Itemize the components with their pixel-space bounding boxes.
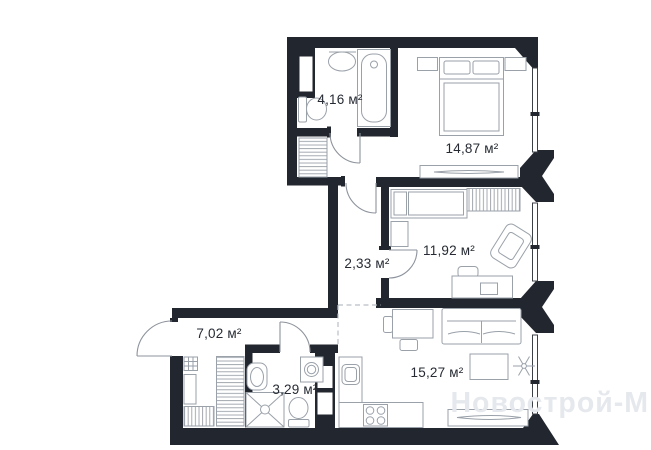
hall-stool-icon: [184, 357, 198, 371]
bedroom-door: [346, 183, 376, 213]
dining-table-icon: [384, 310, 434, 351]
room-labels: 4,16 м² 14,87 м² 11,92 м² 2,33 м² 7,02 м…: [196, 92, 498, 397]
sofa-icon: [442, 309, 521, 345]
shoe-bench-icon: [184, 407, 214, 427]
plant-icon: [513, 357, 535, 376]
sink-top-icon: [329, 52, 357, 71]
room-area-label-room: 11,92 м²: [423, 243, 475, 258]
coffee-table-icon: [470, 354, 508, 380]
room-area-label-hallway: 2,33 м²: [344, 256, 390, 271]
toilet-bottom-icon: [289, 398, 310, 428]
bedroom-window: [533, 68, 538, 152]
stove-icon: [364, 405, 388, 427]
vestibule-wardrobe-icon: [299, 138, 327, 177]
room-area-label-bedroom: 14,87 м²: [446, 141, 499, 156]
entrance-door: [137, 321, 172, 356]
floor-plan-drawing: 4,16 м² 14,87 м² 11,92 м² 2,33 м² 7,02 м…: [0, 0, 651, 450]
watermark-text: Новострой-М: [450, 387, 649, 419]
sink-bottom-icon: [247, 363, 267, 390]
room-window: [533, 203, 538, 281]
room-wardrobe-icon: [467, 189, 520, 212]
hall-console-icon: [184, 375, 196, 405]
armchair-icon: [488, 222, 533, 270]
bathtub-icon: [358, 50, 391, 127]
room-area-label-corridor: 7,02 м²: [196, 326, 242, 341]
bathroom-top-door: [330, 133, 360, 163]
room-area-label-shower-room: 3,29 м²: [272, 382, 318, 397]
hall-wardrobe-icon: [217, 357, 245, 427]
room-door: [389, 250, 417, 278]
nightstand-icon: [391, 222, 408, 247]
room-area-label-bathroom-top: 4,16 м²: [317, 92, 363, 107]
double-bed-icon: [418, 58, 527, 136]
single-bed-icon: [391, 190, 467, 219]
windows: [531, 68, 540, 414]
room-area-label-kitchen-living: 15,27 м²: [411, 365, 464, 380]
washing-machine-icon: [301, 357, 324, 382]
desk-icon: [452, 267, 513, 299]
doors: [137, 133, 417, 356]
zone-dashed-boundary: [338, 305, 381, 345]
shower-room-door: [280, 322, 310, 352]
shower-icon: [246, 393, 284, 428]
dresser-icon: [420, 166, 518, 179]
floor-plan: 4,16 м² 14,87 м² 11,92 м² 2,33 м² 7,02 м…: [0, 0, 651, 450]
